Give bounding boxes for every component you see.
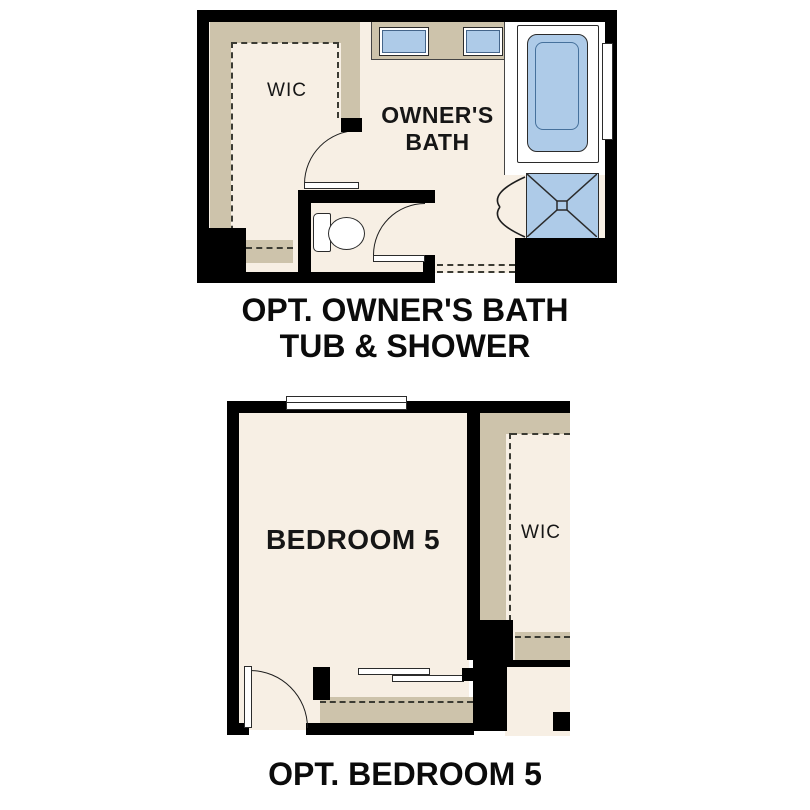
- divider-corner-block: [467, 620, 513, 660]
- wic-dash-top: [231, 42, 339, 44]
- wic-shelf-left: [210, 22, 231, 240]
- owners-bath-plan: WIC OWNER'S BATH: [197, 10, 617, 283]
- bottom-plan-caption: OPT. BEDROOM 5: [0, 756, 810, 792]
- room-label-wic: WIC: [519, 522, 563, 544]
- bedroom-window: [286, 396, 407, 410]
- shower-door: [491, 174, 527, 240]
- wc-top-wall: [298, 190, 435, 203]
- top-caption-line1: OPT. OWNER'S BATH: [0, 292, 810, 328]
- wall-left: [227, 401, 239, 733]
- room-label-bedroom5: BEDROOM 5: [243, 524, 463, 556]
- toilet-bowl: [328, 217, 365, 250]
- wic-shelf-top: [480, 413, 570, 434]
- tub-window: [602, 43, 613, 140]
- room-label-wic: WIC: [247, 80, 327, 102]
- entry-dash-1: [437, 264, 515, 266]
- sink-basin: [382, 30, 426, 53]
- top-caption-line2: TUB & SHOWER: [0, 328, 810, 364]
- wic-shelf-right: [341, 22, 360, 118]
- wic-shelf-bottom: [246, 240, 293, 263]
- wic-dash-left: [509, 433, 511, 621]
- wic-dash-top: [511, 433, 570, 435]
- wic-dash-right: [337, 42, 339, 118]
- closet-shelf-rod-1: [358, 668, 430, 675]
- bathtub-inner-line: [535, 42, 579, 130]
- entry-dash-2: [437, 271, 515, 273]
- closet-stub-mid: [313, 667, 330, 700]
- closet-dash: [320, 701, 473, 703]
- closet-shelf-rod-2: [392, 675, 464, 682]
- wic-dash-left: [231, 42, 233, 242]
- window-mullion: [287, 402, 406, 403]
- wc-left-wall: [298, 190, 311, 283]
- sink-basin: [466, 30, 500, 53]
- vanity-sink-left: [379, 27, 429, 56]
- closet-stub-right: [462, 668, 474, 681]
- wall-bottom-right: [306, 723, 474, 735]
- divider-wall: [467, 408, 480, 620]
- vanity-sink-right: [463, 27, 503, 56]
- floorplan-canvas: WIC OWNER'S BATH OPT. OWNER'S BATH TUB &…: [0, 0, 810, 810]
- shower-drain-x: [527, 174, 597, 237]
- wc-door-leaf: [373, 255, 425, 262]
- corner-block-bottom-left: [197, 228, 246, 283]
- wic-door-stub: [341, 118, 362, 132]
- wall-top: [197, 10, 617, 22]
- block-bottom-right: [515, 238, 617, 283]
- wic-door-leaf: [304, 182, 359, 189]
- divider-column: [473, 660, 507, 731]
- wic-shelf-top: [210, 22, 360, 43]
- wic-dash-bottom: [246, 247, 293, 249]
- edge-stub: [553, 712, 570, 731]
- wic-dash-bottom: [515, 636, 570, 638]
- bedroom5-plan: BEDROOM 5 WIC: [223, 396, 570, 740]
- shower-pan: [526, 173, 599, 239]
- room-label-owners-bath: OWNER'S BATH: [365, 102, 510, 156]
- entry-door-leaf: [244, 666, 252, 728]
- hall-wall-line: [505, 660, 570, 667]
- top-plan-caption: OPT. OWNER'S BATH TUB & SHOWER: [0, 292, 810, 364]
- wic-shelf-left: [480, 434, 506, 620]
